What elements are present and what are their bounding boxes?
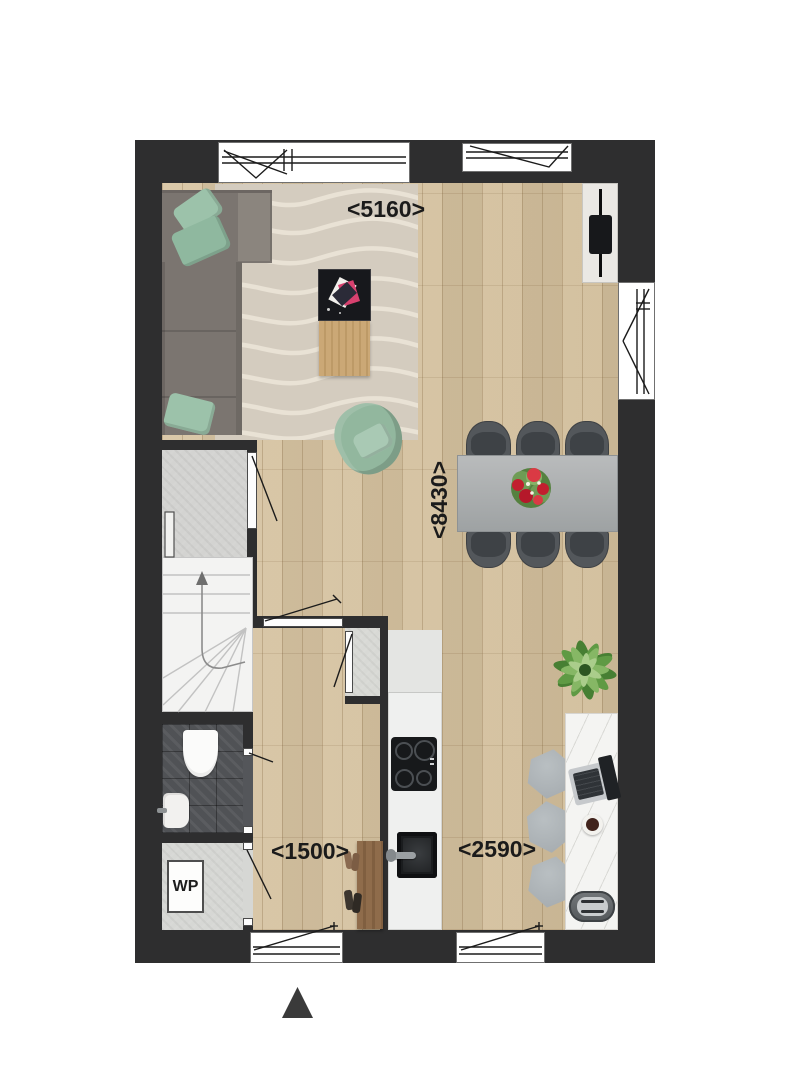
dim-label-living-width: <5160> bbox=[347, 196, 425, 223]
plan-overlay-lines bbox=[0, 0, 791, 1092]
stairs-lines bbox=[163, 575, 250, 712]
handrail bbox=[165, 512, 174, 557]
dim-label-kitchen-width: <2590> bbox=[458, 836, 536, 863]
stairs-up-arrow-icon bbox=[196, 571, 208, 585]
dim-label-total-depth: <8430> bbox=[425, 450, 453, 550]
floor-plan: WP bbox=[0, 0, 791, 1092]
dim-label-hall-width: <1500> bbox=[271, 838, 349, 865]
